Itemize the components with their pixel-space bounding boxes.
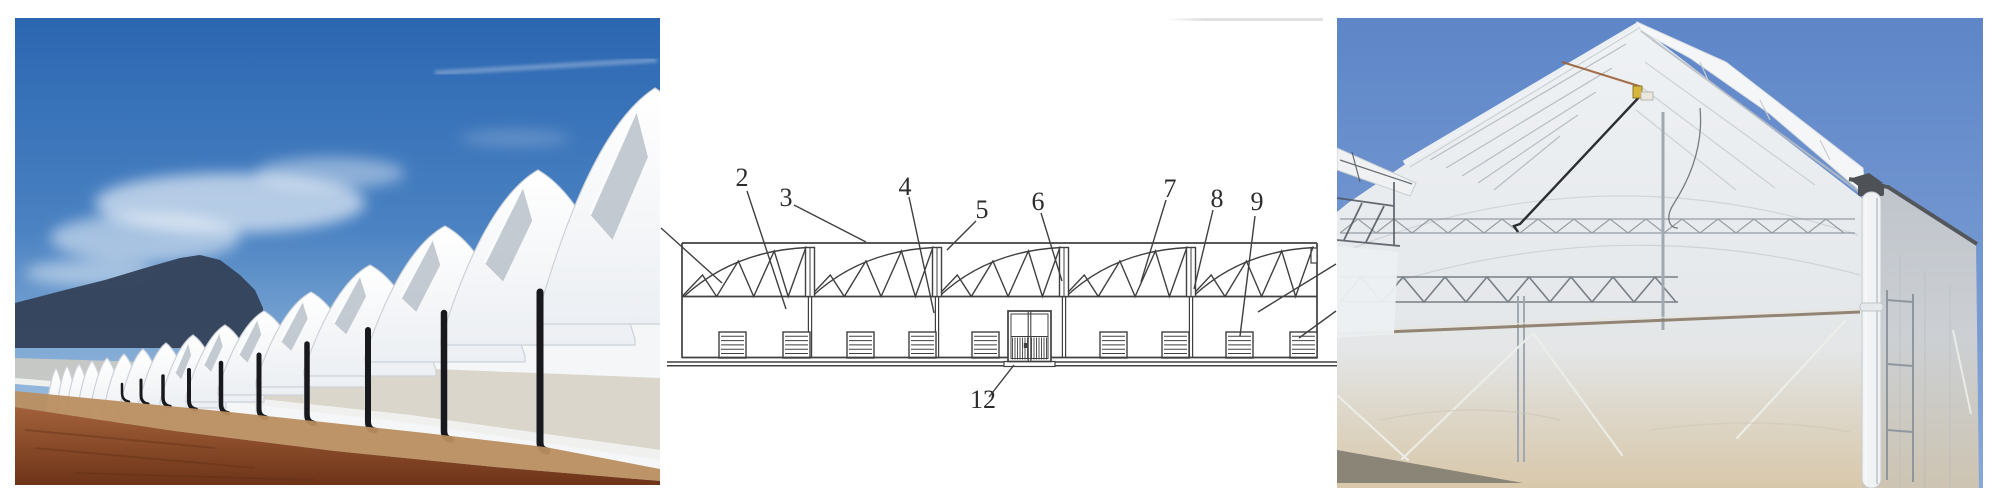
diagram-label-9: 9 (1251, 187, 1264, 216)
downpipe-body (1862, 192, 1881, 488)
faint-top-strip (1165, 18, 1323, 21)
diagram-label-2: 2 (736, 163, 749, 192)
pulley-bracket (1641, 92, 1653, 100)
diagram-label-5: 5 (976, 195, 989, 224)
left-photo-panel (15, 18, 773, 485)
cloud (255, 157, 405, 189)
figure-canvas: 2 3 4 5 6 7 8 9 12 (0, 0, 2000, 500)
diagram-label-6: 6 (1032, 187, 1045, 216)
adjacent-film (1337, 246, 1398, 338)
corner-downpipe (1858, 184, 1884, 488)
right-photo-panel (1337, 18, 1983, 488)
diagram-label-4: 4 (899, 172, 912, 201)
diagram-label-3: 3 (780, 183, 793, 212)
cloud (50, 214, 240, 262)
diagram-label-7: 7 (1164, 174, 1177, 203)
diagram-label-12: 12 (970, 385, 996, 414)
door-handle (1024, 343, 1027, 348)
downpipe-coupling (1860, 303, 1883, 311)
gable-end-photo (1337, 18, 1983, 488)
diagram-label-8: 8 (1211, 184, 1224, 213)
greenhouse-row-photo (15, 18, 773, 485)
cloud (460, 130, 570, 146)
